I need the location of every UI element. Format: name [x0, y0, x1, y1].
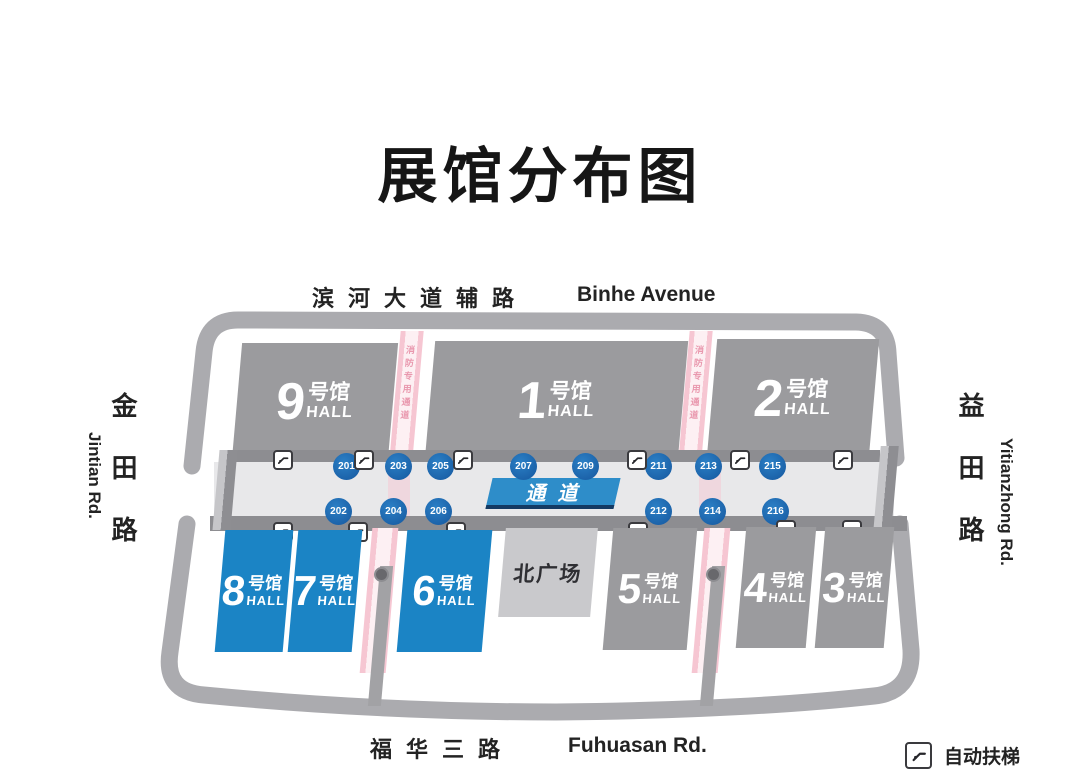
hall-5-label: 5 号馆HALL: [616, 568, 684, 610]
escalator-icon: [627, 450, 647, 470]
north-plaza-label: 北广场: [512, 558, 584, 588]
gate-207: 207: [510, 453, 537, 480]
escalator-icon: [273, 450, 293, 470]
hall-8: 8 号馆HALL: [215, 530, 294, 652]
gate-206: 206: [425, 498, 452, 525]
corridor-sign: 通道: [485, 478, 620, 509]
north-plaza: 北广场: [498, 528, 598, 617]
gate-211: 211: [645, 453, 672, 480]
page-title: 展馆分布图: [0, 128, 1080, 215]
hall-6: 6 号馆HALL: [397, 530, 493, 652]
hall-3: 3 号馆HALL: [815, 527, 895, 648]
fire-lane-label: 消防专用通道: [398, 345, 418, 423]
gate-203: 203: [385, 453, 412, 480]
road-binhe-en: Binhe Avenue: [577, 283, 715, 307]
hall-2: 2 号馆HALL: [707, 339, 879, 458]
road-fuhuasan-en: Fuhuasan Rd.: [568, 734, 707, 758]
ramp-right-pivot: [706, 567, 721, 582]
escalator-icon: [905, 742, 932, 769]
hall-1: 1 号馆HALL: [425, 341, 688, 460]
escalator-icon: [453, 450, 473, 470]
fire-lane-label: 消防专用通道: [687, 345, 707, 423]
ramp-left-pivot: [374, 567, 389, 582]
road-jintian-zh: 金田路: [105, 392, 142, 578]
gate-214: 214: [699, 498, 726, 525]
escalator-icon: [730, 450, 750, 470]
gate-202: 202: [325, 498, 352, 525]
gate-209: 209: [572, 453, 599, 480]
escalator-icon: [833, 450, 853, 470]
road-jintian-en: Jintian Rd.: [84, 432, 104, 519]
road-fuhuasan-zh: 福华三路: [370, 732, 514, 764]
hall-7: 7 号馆HALL: [288, 530, 363, 652]
hall-1-label: 1 号馆HALL: [515, 375, 597, 427]
legend: 自动扶梯: [905, 742, 1020, 769]
hall-4-label: 4 号馆HALL: [742, 567, 810, 609]
hall-7-label: 7 号馆HALL: [291, 570, 359, 612]
hall-6-label: 6 号馆HALL: [411, 570, 479, 612]
road-yitianzhong-en: Yitianzhong Rd.: [996, 438, 1016, 566]
hall-3-label: 3 号馆HALL: [821, 567, 889, 609]
hall-9: 9 号馆HALL: [232, 343, 398, 460]
gate-204: 204: [380, 498, 407, 525]
escalator-icon: [354, 450, 374, 470]
gate-212: 212: [645, 498, 672, 525]
gate-213: 213: [695, 453, 722, 480]
hall-8-label: 8 号馆HALL: [220, 570, 288, 612]
hall-9-label: 9 号馆HALL: [274, 376, 356, 428]
gate-215: 215: [759, 453, 786, 480]
hall-5: 5 号馆HALL: [603, 528, 698, 650]
gate-205: 205: [427, 453, 454, 480]
corridor-sign-label: 通道: [512, 477, 595, 506]
hall-2-label: 2 号馆HALL: [752, 373, 834, 425]
road-binhe-zh: 滨河大道辅路: [312, 281, 528, 313]
road-yitian-zh: 益田路: [952, 392, 989, 578]
legend-escalator-label: 自动扶梯: [944, 742, 1020, 769]
hall-4: 4 号馆HALL: [736, 527, 817, 648]
